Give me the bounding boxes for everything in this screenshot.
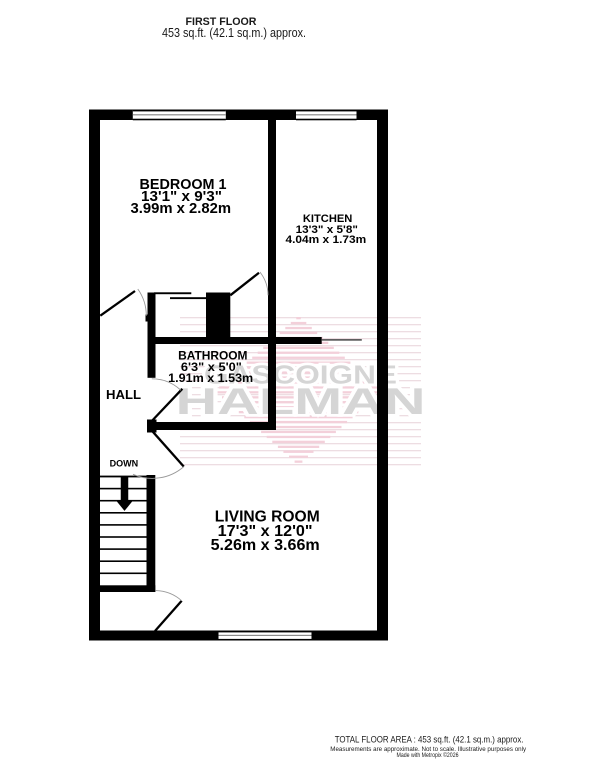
svg-text:1.91m x 1.53m: 1.91m x 1.53m (168, 371, 253, 385)
svg-text:TOTAL FLOOR AREA : 453 sq.ft.: TOTAL FLOOR AREA : 453 sq.ft. (42.1 sq.m… (335, 735, 524, 745)
svg-text:453 sq.ft. (42.1 sq.m.) approx: 453 sq.ft. (42.1 sq.m.) approx. (162, 26, 306, 40)
svg-text:Made with Metropix ©2026: Made with Metropix ©2026 (397, 752, 459, 759)
svg-text:4.04m x 1.73m: 4.04m x 1.73m (286, 234, 367, 246)
svg-text:DOWN: DOWN (110, 458, 139, 468)
svg-text:5.26m x 3.66m: 5.26m x 3.66m (211, 537, 320, 554)
svg-text:HALL: HALL (106, 387, 141, 402)
svg-text:3.99m x 2.82m: 3.99m x 2.82m (131, 201, 232, 217)
